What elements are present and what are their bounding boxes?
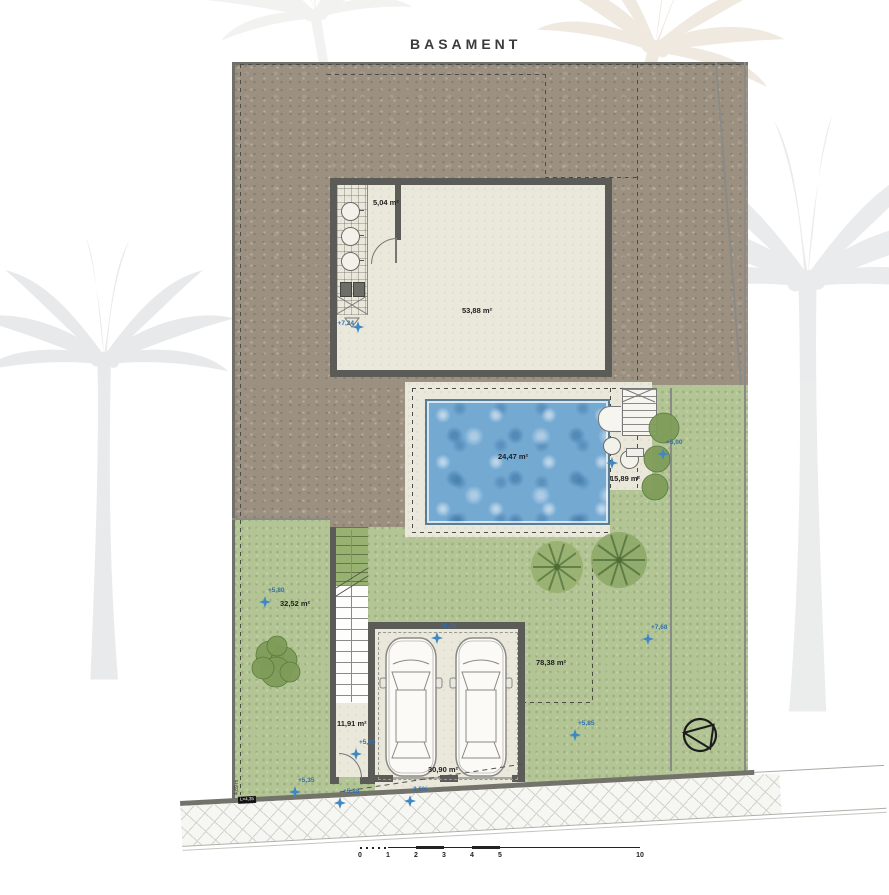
boundary-diagonal (716, 62, 741, 385)
level-marker-star-icon (259, 596, 271, 608)
level-label: +5,85 (578, 720, 594, 727)
scale-tick: 10 (633, 852, 647, 859)
level-label: +7,68 (651, 624, 667, 631)
level-marker-star-icon (404, 795, 416, 807)
level-marker: +7,24 (352, 320, 364, 332)
level-label: +6,78 (440, 623, 456, 630)
scale-tick: 1 (381, 852, 395, 859)
level-marker-star-icon (569, 729, 581, 741)
level-marker: +5,35 (289, 785, 301, 797)
level-marker: +5,00 (657, 447, 669, 459)
curb-dimension-chip: L=4,35 (238, 796, 256, 803)
level-marker: +5,85 (569, 728, 581, 740)
level-label: +5,80 (268, 587, 284, 594)
left-boundary-dimension: 4,89 m (234, 780, 240, 795)
level-marker-star-icon (350, 748, 362, 760)
scale-segment (472, 846, 500, 849)
scale-dot (360, 847, 362, 849)
slope-marker: 3,6% (404, 794, 416, 806)
scale-tick: 2 (409, 852, 423, 859)
level-label: +5,00 (666, 439, 682, 446)
floorplan-page: BASAMENT 24,47 m² 15,89 m² 5,04 m² (0, 0, 889, 895)
scale-tick: 3 (437, 852, 451, 859)
level-label: +5,86 (359, 739, 375, 746)
tree-icon (252, 636, 300, 687)
scale-dot (372, 847, 374, 849)
scale-tick: 5 (493, 852, 507, 859)
scale-tick: 4 (465, 852, 479, 859)
level-marker-star-icon (289, 786, 301, 798)
level-marker: +5,86 (350, 747, 362, 759)
level-marker (606, 456, 618, 468)
scale-segment (444, 847, 472, 848)
level-marker-star-icon (657, 448, 669, 460)
level-marker-star-icon (642, 633, 654, 645)
palm-tree-icon (531, 541, 583, 593)
scale-dot (366, 847, 368, 849)
scale-dot (384, 847, 386, 849)
level-marker: +7,68 (642, 632, 654, 644)
scale-dot (378, 847, 380, 849)
scale-segment (500, 847, 640, 848)
level-marker-star-icon (431, 632, 443, 644)
level-marker-star-icon (606, 457, 618, 469)
level-label: +7,24 (338, 320, 354, 327)
level-marker-star-icon (334, 797, 346, 809)
palm-tree-icon (591, 532, 647, 588)
plan-overlay (0, 0, 889, 895)
scale-bar: 0 1 2 3 4 5 10 (350, 840, 660, 862)
level-marker: +5,80 (259, 595, 271, 607)
level-label: +5,28 (343, 788, 359, 795)
level-marker: +6,78 (431, 631, 443, 643)
north-arrow-icon (682, 717, 718, 753)
scale-segment (388, 847, 416, 848)
level-label: +5,35 (298, 777, 314, 784)
scale-segment (416, 846, 444, 849)
level-marker: +5,28 (334, 796, 346, 808)
slope-label: 3,6% (413, 786, 428, 793)
scale-tick: 0 (353, 852, 367, 859)
